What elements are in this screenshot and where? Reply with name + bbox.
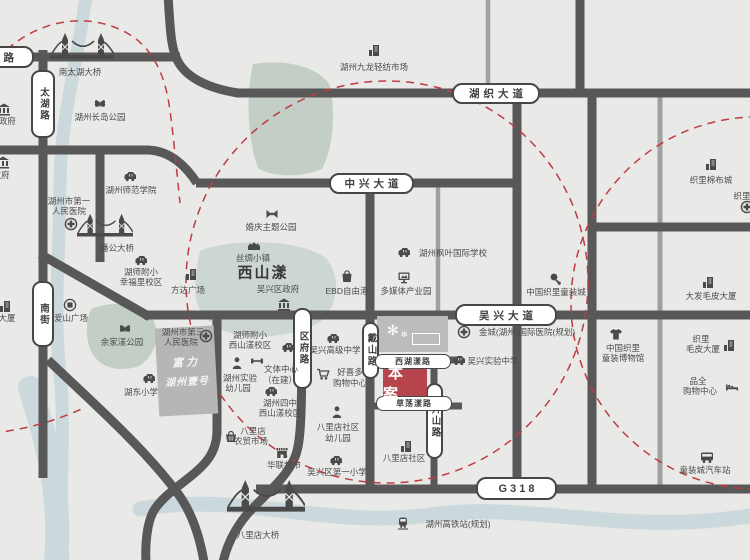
- road-label: G318: [476, 477, 557, 500]
- map-label: 市政府: [0, 115, 16, 127]
- map-label: 政府: [0, 169, 10, 181]
- map-label: 幸福里校区: [120, 276, 163, 288]
- road-label: 吴兴大道: [455, 304, 557, 326]
- map-label: 童装博物馆: [602, 352, 645, 364]
- train-icon: [396, 516, 410, 530]
- map-canvas: [0, 0, 750, 560]
- tshirt-icon: [609, 327, 623, 341]
- park-area: [249, 62, 333, 175]
- map-label: 西山漾校区: [229, 339, 272, 351]
- map-label: 华联超市: [267, 459, 301, 471]
- building-icon: [722, 338, 736, 352]
- plaza-icon: [63, 298, 77, 312]
- basket-icon: [224, 429, 238, 443]
- bank-icon: [0, 102, 11, 116]
- bank-icon: [0, 155, 10, 169]
- building-icon: [0, 299, 12, 313]
- building-icon: [704, 157, 718, 171]
- sparkle-icon: ✼: [401, 330, 408, 339]
- map-label: 吴兴实验中学: [467, 355, 518, 367]
- map-label: 幼儿园: [225, 382, 251, 394]
- site-marker: 本案: [383, 369, 427, 396]
- school-icon: [134, 253, 148, 267]
- map-label: 湖州师范学院: [105, 184, 156, 196]
- building-icon: [701, 275, 715, 289]
- parcel-brand: 富力: [172, 353, 201, 370]
- map-label: 湖州枫叶国际学校: [419, 247, 487, 259]
- map-label: 吴兴区政府: [257, 283, 300, 295]
- map-label: 多媒体产业园: [380, 285, 431, 297]
- map-label: 中国织里童装城: [526, 286, 586, 298]
- bus-icon: [700, 450, 714, 464]
- map-label: 西山漾: [237, 262, 288, 283]
- cross-icon: [457, 325, 471, 339]
- screen-icon: [397, 270, 411, 284]
- map-label: 大厦: [0, 312, 16, 324]
- map-label: 金城(湖州)国际医院(规划): [479, 326, 575, 338]
- map-label: 八里店社区: [383, 452, 426, 464]
- map-label: 爱山广场: [54, 312, 88, 324]
- cross-icon: [64, 217, 78, 231]
- person-icon: [230, 356, 244, 370]
- road-label: 太湖路: [31, 70, 55, 138]
- road-label: 湖织大道: [452, 83, 540, 104]
- school-icon: [123, 169, 137, 183]
- map-label: 湖东小学: [124, 386, 158, 398]
- map-label: 湖州高铁站(规划): [425, 518, 490, 530]
- map-label: 余家漾公园: [101, 336, 144, 348]
- road-label: 升山路: [426, 383, 443, 459]
- person-icon: [330, 405, 344, 419]
- map-label: 湖州九龙轻纺市场: [340, 61, 408, 73]
- map-label: 西山漾校区: [259, 407, 302, 419]
- school-icon: [264, 384, 278, 398]
- location-map: 富力 湖州壹号 ✻ ✼ 本案 路太湖路南街湖织大道中兴大道吴兴大道G318区府路…: [0, 0, 750, 560]
- map-label: 织里棉布城: [690, 174, 733, 186]
- road: [168, 0, 238, 93]
- houses-icon: [247, 237, 261, 251]
- school-icon: [281, 340, 295, 354]
- map-label: 人民医院: [164, 336, 198, 348]
- school-icon: [452, 353, 466, 367]
- school-icon: [326, 331, 340, 345]
- map-label: 大发毛皮大厦: [685, 290, 736, 302]
- store-icon: [275, 445, 289, 459]
- butterfly-icon: [93, 97, 107, 111]
- map-label: 童装城汽车站: [679, 464, 730, 476]
- bed-icon: [725, 380, 739, 394]
- road-label: 戴山路: [362, 322, 379, 379]
- building-icon: [367, 43, 381, 57]
- bag-icon: [340, 269, 354, 283]
- building-icon: [184, 267, 198, 281]
- school-icon: [329, 453, 343, 467]
- school-icon: [142, 371, 156, 385]
- building-icon: [399, 439, 413, 453]
- project-logo-box: ✻ ✼: [377, 316, 448, 352]
- school-icon: [397, 245, 411, 259]
- map-label: 湖州长岛公园: [74, 111, 125, 123]
- map-label: 婚庆主题公园: [245, 221, 296, 233]
- road-label: 中兴大道: [329, 173, 414, 194]
- map-label: 八里店大桥: [237, 529, 280, 541]
- map-label: 幼儿园: [325, 432, 351, 444]
- bank-icon: [277, 297, 291, 311]
- cross-icon: [199, 329, 213, 343]
- cart-icon: [316, 367, 330, 381]
- map-label: 南太湖大桥: [59, 66, 102, 78]
- map-label: 购物中心: [683, 385, 717, 397]
- map-label: EBD自由港: [326, 285, 369, 297]
- map-label: 毛皮大厦: [686, 343, 720, 355]
- bridge-icon: [227, 476, 305, 518]
- road-label: 南街: [32, 281, 54, 347]
- map-label: 购物中心: [333, 377, 367, 389]
- flower-icon: ✻: [387, 322, 399, 339]
- map-label: 吴兴区第一小学: [307, 466, 367, 478]
- bridge-icon: [77, 211, 133, 241]
- barbell-icon: [250, 354, 264, 368]
- logo-wordmark: [412, 333, 440, 345]
- map-label: 潘公大桥: [100, 242, 134, 254]
- map-label: 农贸市场: [234, 435, 268, 447]
- bridge-icon: [50, 30, 114, 64]
- cross-icon: [740, 200, 750, 214]
- butterfly-icon: [118, 322, 132, 336]
- bowtie-icon: [265, 207, 279, 221]
- baby-icon: [548, 272, 562, 286]
- map-label: 吴兴高级中学: [309, 344, 360, 356]
- map-label: 方达广场: [171, 284, 205, 296]
- parcel-project-name: 湖州壹号: [165, 372, 210, 389]
- road-label: 路: [0, 46, 34, 68]
